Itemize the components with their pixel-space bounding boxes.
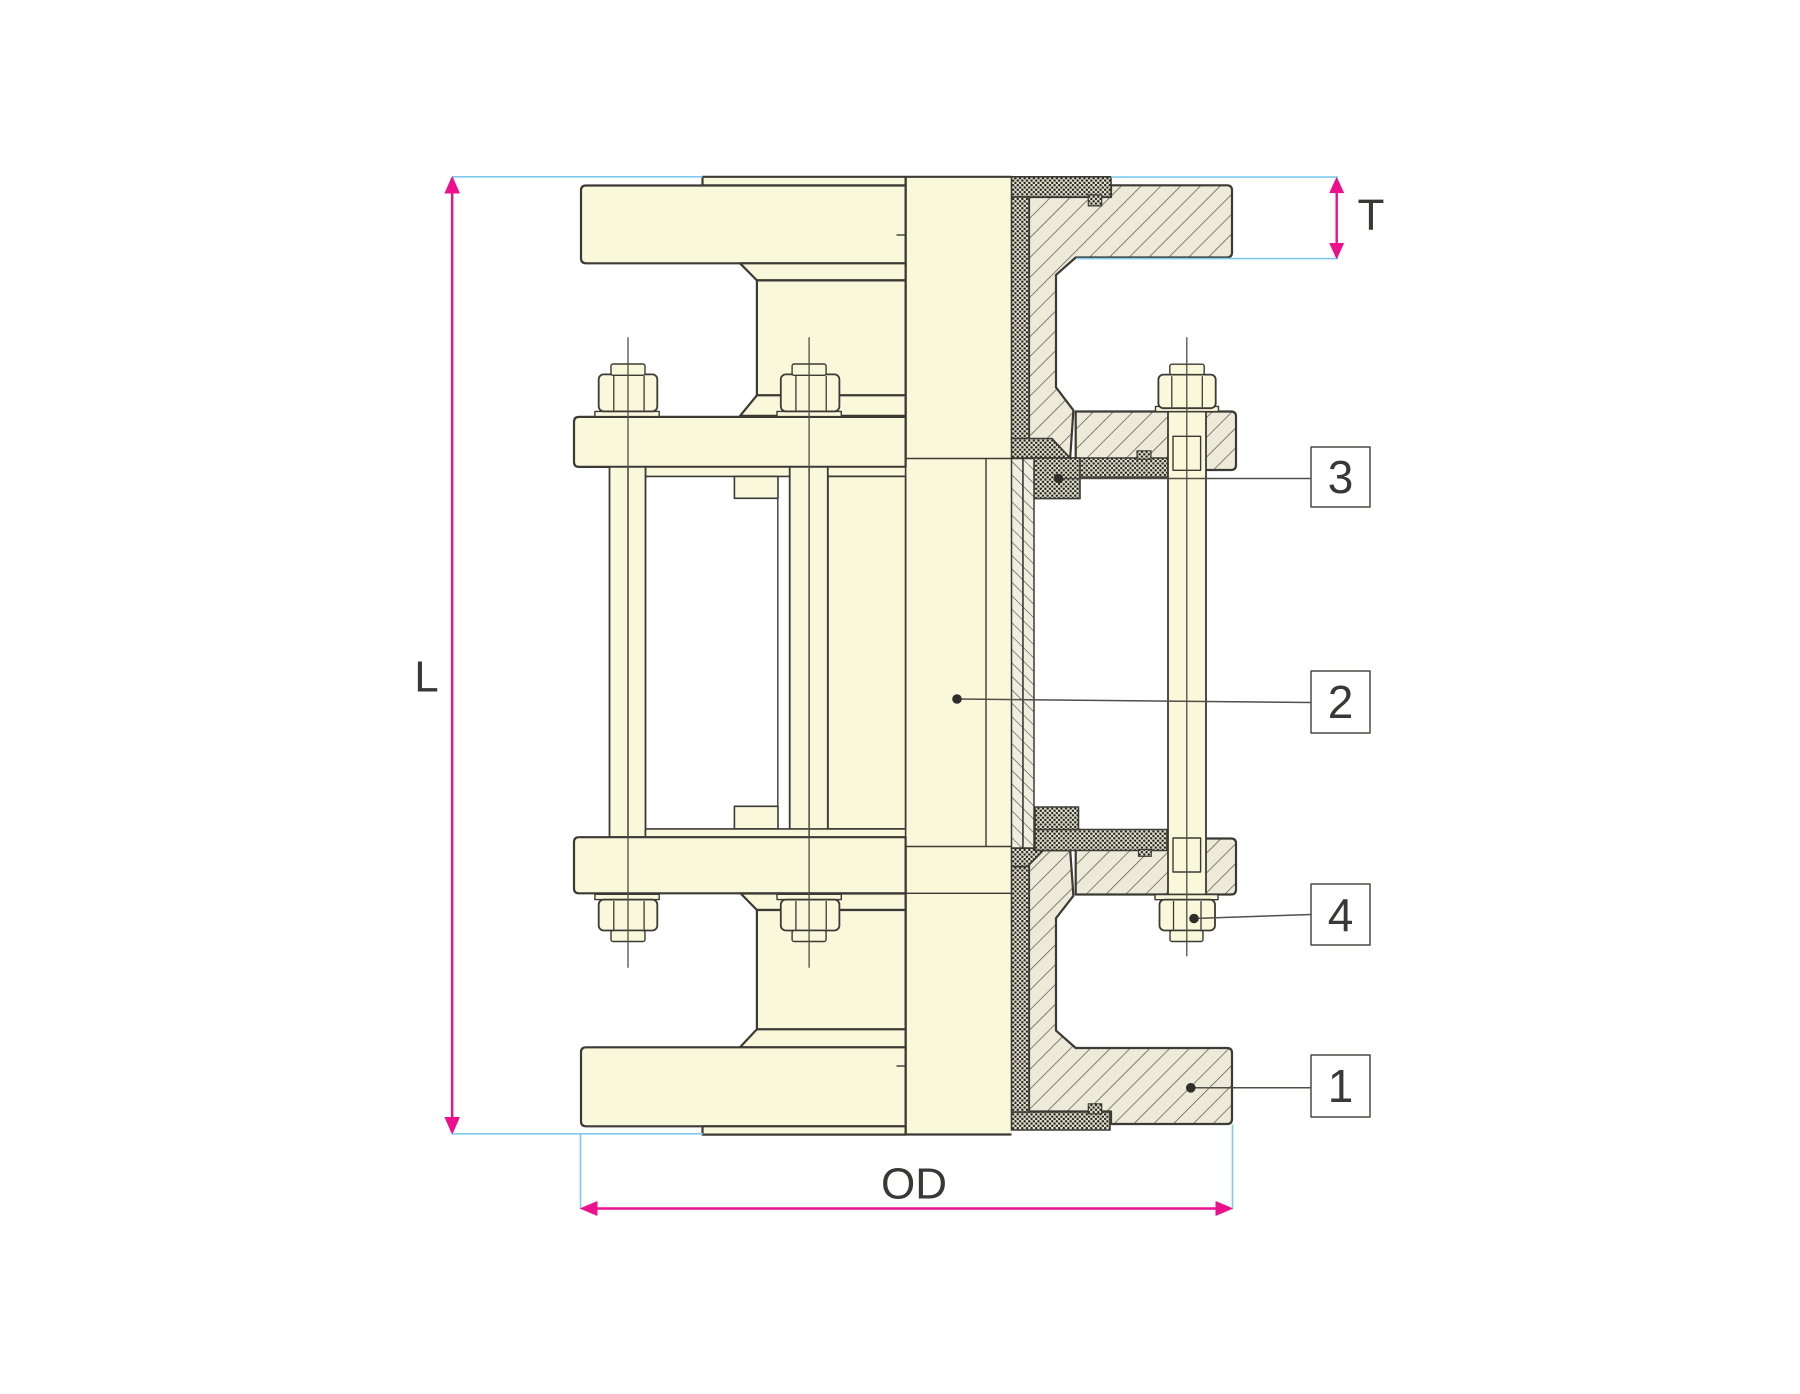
svg-text:3: 3 xyxy=(1328,451,1354,503)
svg-text:T: T xyxy=(1358,191,1385,240)
svg-text:L: L xyxy=(414,653,438,702)
svg-text:2: 2 xyxy=(1328,676,1354,728)
svg-text:1: 1 xyxy=(1328,1060,1354,1112)
svg-text:4: 4 xyxy=(1328,889,1354,941)
svg-text:OD: OD xyxy=(881,1160,947,1209)
